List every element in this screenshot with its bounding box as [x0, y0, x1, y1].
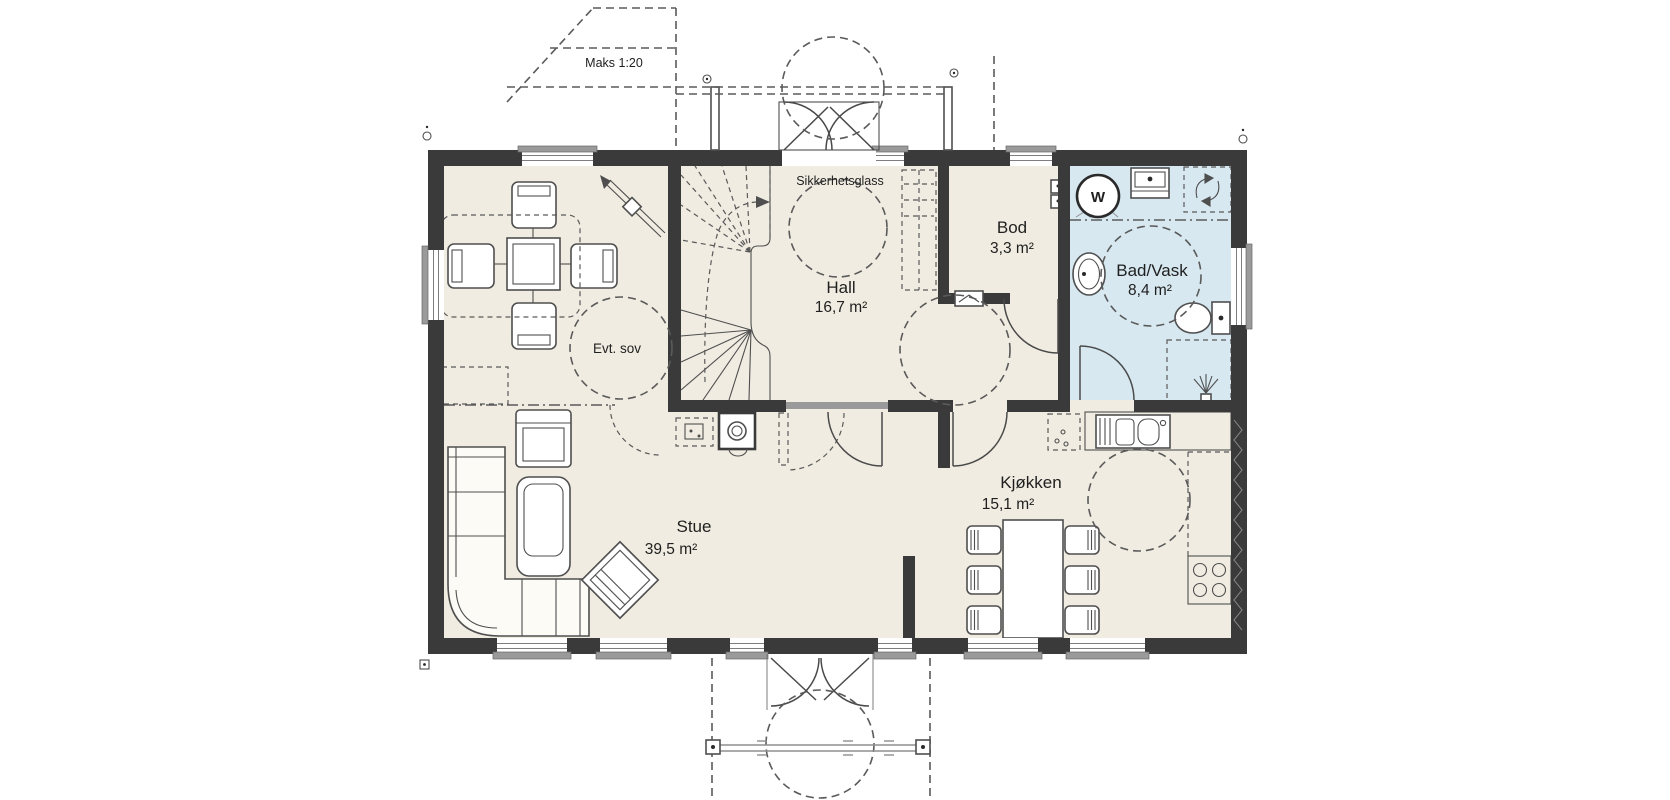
deck [706, 654, 930, 798]
window [493, 638, 571, 659]
porch-post [944, 87, 952, 150]
window [422, 246, 444, 324]
window [1231, 244, 1252, 329]
kitchen-chair [967, 606, 1001, 634]
ramp: Maks 1:20 [507, 8, 994, 150]
kitchen-chair [967, 566, 1001, 594]
kjokken-name: Kjøkken [1000, 473, 1061, 492]
floor-plan-page: W [0, 0, 1670, 800]
wall-opening [786, 402, 888, 409]
dining-chair [512, 303, 556, 349]
lounge-chair [517, 477, 570, 576]
chimney [719, 413, 755, 449]
evt-sov-name: Evt. sov [593, 341, 641, 356]
kitchen-chair [1065, 526, 1099, 554]
bod-door [955, 291, 983, 306]
kitchen-table-group [967, 520, 1099, 638]
window [1006, 146, 1056, 166]
toilet [1175, 302, 1230, 334]
washing-machine-label: W [1091, 189, 1106, 206]
hall-name: Hall [826, 278, 855, 297]
window [874, 638, 916, 659]
floor-plan-drawing: W [0, 0, 1670, 800]
safety-glass-label: Sikkerhetsglass [796, 174, 884, 188]
dining-chair [512, 182, 556, 228]
stue-name: Stue [677, 517, 712, 536]
entrance [703, 37, 958, 166]
entrance-opening [782, 150, 876, 166]
kitchen-chair [967, 526, 1001, 554]
kitchen-chair [1065, 566, 1099, 594]
window [964, 638, 1042, 659]
dining-chair [571, 244, 617, 288]
stue-area: 39,5 m² [645, 541, 698, 558]
bod-area: 3,3 m² [990, 240, 1034, 257]
dining-chair [448, 244, 494, 288]
window [596, 638, 671, 659]
kjokken-area: 15,1 m² [982, 496, 1035, 513]
kitchen-table [1003, 520, 1063, 638]
turning-circle [766, 690, 874, 798]
dining-table [507, 238, 560, 290]
window [726, 638, 768, 659]
porch-post [711, 87, 719, 150]
kitchen-chair [1065, 606, 1099, 634]
ramp-label: Maks 1:20 [585, 56, 643, 70]
bad-vask-area: 8,4 m² [1128, 282, 1172, 299]
hall-area: 16,7 m² [815, 299, 868, 316]
bod-name: Bod [997, 218, 1027, 237]
window [872, 146, 908, 166]
bad-vask-name: Bad/Vask [1116, 261, 1188, 280]
armchair [516, 410, 571, 467]
window [1066, 638, 1149, 659]
window [518, 146, 597, 166]
